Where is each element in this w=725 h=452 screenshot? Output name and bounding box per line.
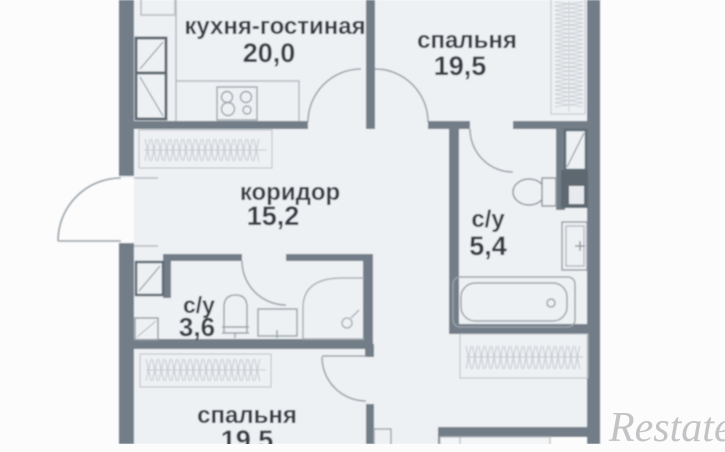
svg-text:19,5: 19,5 <box>221 425 274 444</box>
svg-text:15,2: 15,2 <box>247 201 300 231</box>
svg-text:20,0: 20,0 <box>243 38 296 68</box>
svg-text:5,4: 5,4 <box>469 231 507 261</box>
svg-text:спальня: спальня <box>417 27 517 54</box>
svg-text:кухня-гостиная: кухня-гостиная <box>184 13 365 40</box>
svg-text:с/у: с/у <box>471 206 505 233</box>
svg-text:19,5: 19,5 <box>434 51 487 81</box>
svg-text:3,6: 3,6 <box>179 312 215 342</box>
